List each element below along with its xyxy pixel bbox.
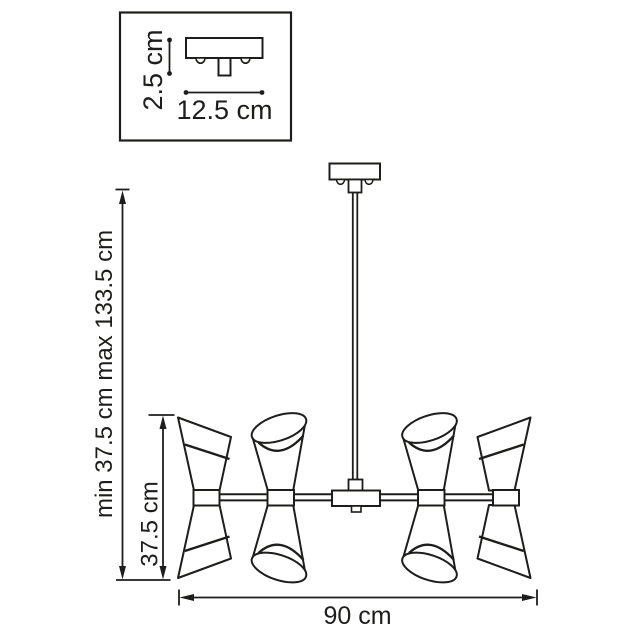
canopy-stem bbox=[219, 58, 231, 76]
mount-bump-right bbox=[241, 58, 250, 63]
technical-drawing-chandelier: 2.5 cm 12.5 cm bbox=[0, 0, 630, 630]
inset-width-label: 12.5 cm bbox=[176, 95, 272, 125]
inset-width-dimension: 12.5 cm bbox=[176, 90, 272, 125]
spec-inset: 2.5 cm 12.5 cm bbox=[120, 13, 291, 141]
center-hub bbox=[332, 480, 380, 513]
mount-bump-left bbox=[196, 58, 205, 63]
hanging-rod bbox=[353, 193, 358, 480]
canopy-top-view bbox=[186, 38, 263, 76]
fixture-width-dimension: 90 cm bbox=[179, 590, 537, 630]
hanging-height-dimension: min 37.5 cm max 133.5 cm bbox=[91, 190, 130, 580]
fixture-height-label: 37.5 cm bbox=[136, 481, 163, 566]
ceiling-canopy bbox=[330, 164, 381, 193]
chandelier-drawing bbox=[178, 164, 531, 589]
fixture-width-label: 90 cm bbox=[323, 602, 391, 630]
hanging-height-label: min 37.5 cm max 133.5 cm bbox=[91, 230, 118, 518]
fixture-height-dimension: 37.5 cm bbox=[116, 415, 175, 580]
inset-height-label: 2.5 cm bbox=[138, 29, 168, 110]
drawing-svg: 2.5 cm 12.5 cm bbox=[0, 0, 630, 630]
inset-height-dimension: 2.5 cm bbox=[138, 29, 172, 110]
